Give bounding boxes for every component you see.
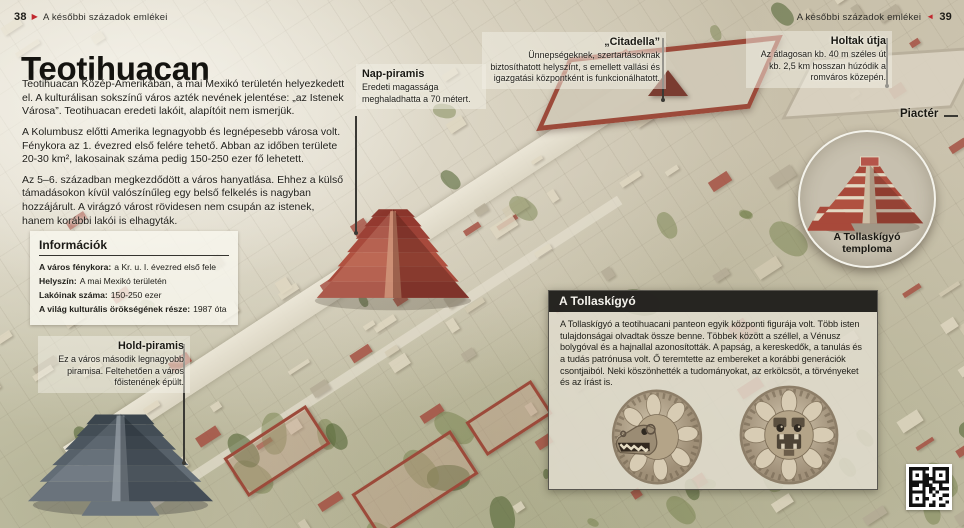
vegetation-patch <box>767 0 797 29</box>
ruin-building <box>546 189 559 204</box>
ruin-building <box>388 353 410 373</box>
ruin-building <box>754 256 782 280</box>
ruin-building <box>349 343 373 363</box>
ruin-building <box>0 330 12 344</box>
running-head-right: A későbbi századok emlékei◄39 <box>797 11 952 23</box>
label-market: Piactér <box>900 108 938 120</box>
info-label: Lakóinak száma: <box>39 290 108 300</box>
vegetation-patch <box>437 167 464 193</box>
ruin-building <box>959 315 964 337</box>
info-value: a Kr. u. I. évezred első fele <box>114 262 216 272</box>
red-triangle-right-icon: ▶ <box>32 12 38 21</box>
intro-text: Teotihuacan Közép-Amerikában, a mai Mexi… <box>22 78 348 235</box>
ruin-building <box>771 494 794 514</box>
chapter-title-right: A későbbi századok emlékei <box>797 12 922 23</box>
book-spread-teotihuacan: 38▶A későbbi századok emlékei A későbbi … <box>0 0 964 528</box>
info-row: A világ kulturális örökségének része:198… <box>39 303 229 317</box>
callout-text: Az átlagosan kb. 40 m széles út kb. 2,5 … <box>752 49 886 84</box>
ruin-building <box>939 281 961 297</box>
qr-code-pattern <box>909 467 949 507</box>
intro-paragraph: Teotihuacan Közép-Amerikában, a mai Mexi… <box>22 78 348 119</box>
vegetation-patch <box>586 517 600 528</box>
ruin-building <box>619 171 642 189</box>
ruin-building <box>445 318 460 334</box>
callout-title: Holtak útja <box>752 35 886 47</box>
intro-paragraph: Az 5–6. században megkezdődött a város h… <box>22 174 348 229</box>
serpent-head-carving-profile <box>605 382 710 491</box>
ruin-building <box>600 266 615 281</box>
info-row: Lakóinak száma:150-250 ezer <box>39 289 229 303</box>
qr-code <box>906 464 952 510</box>
callout-avenue-of-dead: Holtak útja Az átlagosan kb. 40 m széles… <box>746 31 892 88</box>
ruin-building <box>373 314 397 333</box>
ruin-building <box>461 347 477 362</box>
ruin-building <box>909 37 921 48</box>
info-value: 150-250 ezer <box>111 290 162 300</box>
info-label: Helyszín: <box>39 276 77 286</box>
info-box-title: Információk <box>39 238 229 256</box>
red-triangle-left-icon: ◄ <box>926 12 934 21</box>
ruin-building <box>896 410 923 433</box>
vegetation-patch <box>740 209 755 220</box>
vegetation-patch <box>487 494 518 528</box>
ruin-building <box>768 164 796 188</box>
ruin-building <box>863 506 888 527</box>
feathered-serpent-temple-illustration <box>807 146 927 238</box>
ruin-building <box>707 171 731 192</box>
ruin-building <box>362 320 374 330</box>
ruin-building <box>949 138 964 154</box>
callout-title: „Citadella” <box>488 36 660 48</box>
ruin-building <box>298 518 311 528</box>
info-label: A világ kulturális örökségének része: <box>39 304 190 314</box>
moon-pyramid-illustration <box>28 388 213 518</box>
serpent-head-carving-frontal <box>737 383 841 487</box>
info-value: 1987 óta <box>193 304 226 314</box>
ruin-building <box>288 359 310 376</box>
intro-paragraph: A Kolumbusz előtti Amerika legnagyobb és… <box>22 126 348 167</box>
magnifier-inset-temple: A Tollaskígyó temploma <box>798 130 936 268</box>
info-row: Helyszín:A mai Mexikó területén <box>39 275 229 289</box>
info-row: A város fénykora:a Kr. u. I. évezred els… <box>39 261 229 275</box>
ruin-building <box>954 509 964 526</box>
ruin-building <box>903 283 923 299</box>
chapter-title-left: A későbbi századok emlékei <box>43 12 168 23</box>
callout-moon-pyramid: Hold-piramis Ez a város második legnagyo… <box>38 336 190 393</box>
callout-text: Ünnepségeknek, szertartásoknak biztosíth… <box>488 50 660 85</box>
ruin-building <box>489 214 518 239</box>
vegetation-patch <box>653 209 681 242</box>
page-number-right: 39 <box>939 11 952 23</box>
callout-citadel: „Citadella” Ünnepségeknek, szertartásokn… <box>482 32 666 89</box>
leader-line-sun-pyramid <box>355 116 357 233</box>
ruin-building <box>91 30 106 45</box>
ruin-building <box>940 317 958 334</box>
vegetation-patch <box>708 23 723 41</box>
panel-title: A Tollaskígyó <box>549 291 877 312</box>
ruin-building <box>534 244 552 258</box>
ruin-building <box>712 267 729 282</box>
callout-text: Eredeti magassága meghaladhatta a 70 mét… <box>362 82 480 105</box>
feathered-serpent-panel: A Tollaskígyó A Tollaskígyó a teotihuaca… <box>548 290 878 490</box>
info-label: A város fénykora: <box>39 262 111 272</box>
info-box: Információk A város fénykora:a Kr. u. I.… <box>30 231 238 325</box>
callout-text: Ez a város második legnagyobb piramisa. … <box>44 354 184 389</box>
ruin-building <box>474 203 489 217</box>
callout-title: Nap-piramis <box>362 68 480 80</box>
callout-sun-pyramid: Nap-piramis Eredeti magassága meghaladha… <box>356 64 486 109</box>
ruin-building <box>664 165 679 177</box>
ruin-building <box>957 363 964 377</box>
ruin-building <box>915 437 934 451</box>
ruin-building <box>835 0 847 5</box>
callout-title: Hold-piramis <box>44 340 184 352</box>
ruin-building <box>512 501 525 514</box>
vegetation-patch <box>959 420 964 440</box>
ruin-building <box>956 442 964 458</box>
info-value: A mai Mexikó területén <box>80 276 167 286</box>
panel-text: A Tollaskígyó a teotihuacani panteon egy… <box>549 312 877 389</box>
ruin-building <box>310 379 331 398</box>
leader-dash-market <box>944 115 958 117</box>
running-head-left: 38▶A későbbi századok emlékei <box>14 11 168 23</box>
ruin-building <box>530 155 542 165</box>
ruin-building <box>318 491 344 512</box>
page-number-left: 38 <box>14 11 27 23</box>
ruin-building <box>0 376 1 391</box>
inset-caption: A Tollaskígyó temploma <box>812 231 922 256</box>
ruin-building <box>385 344 400 357</box>
